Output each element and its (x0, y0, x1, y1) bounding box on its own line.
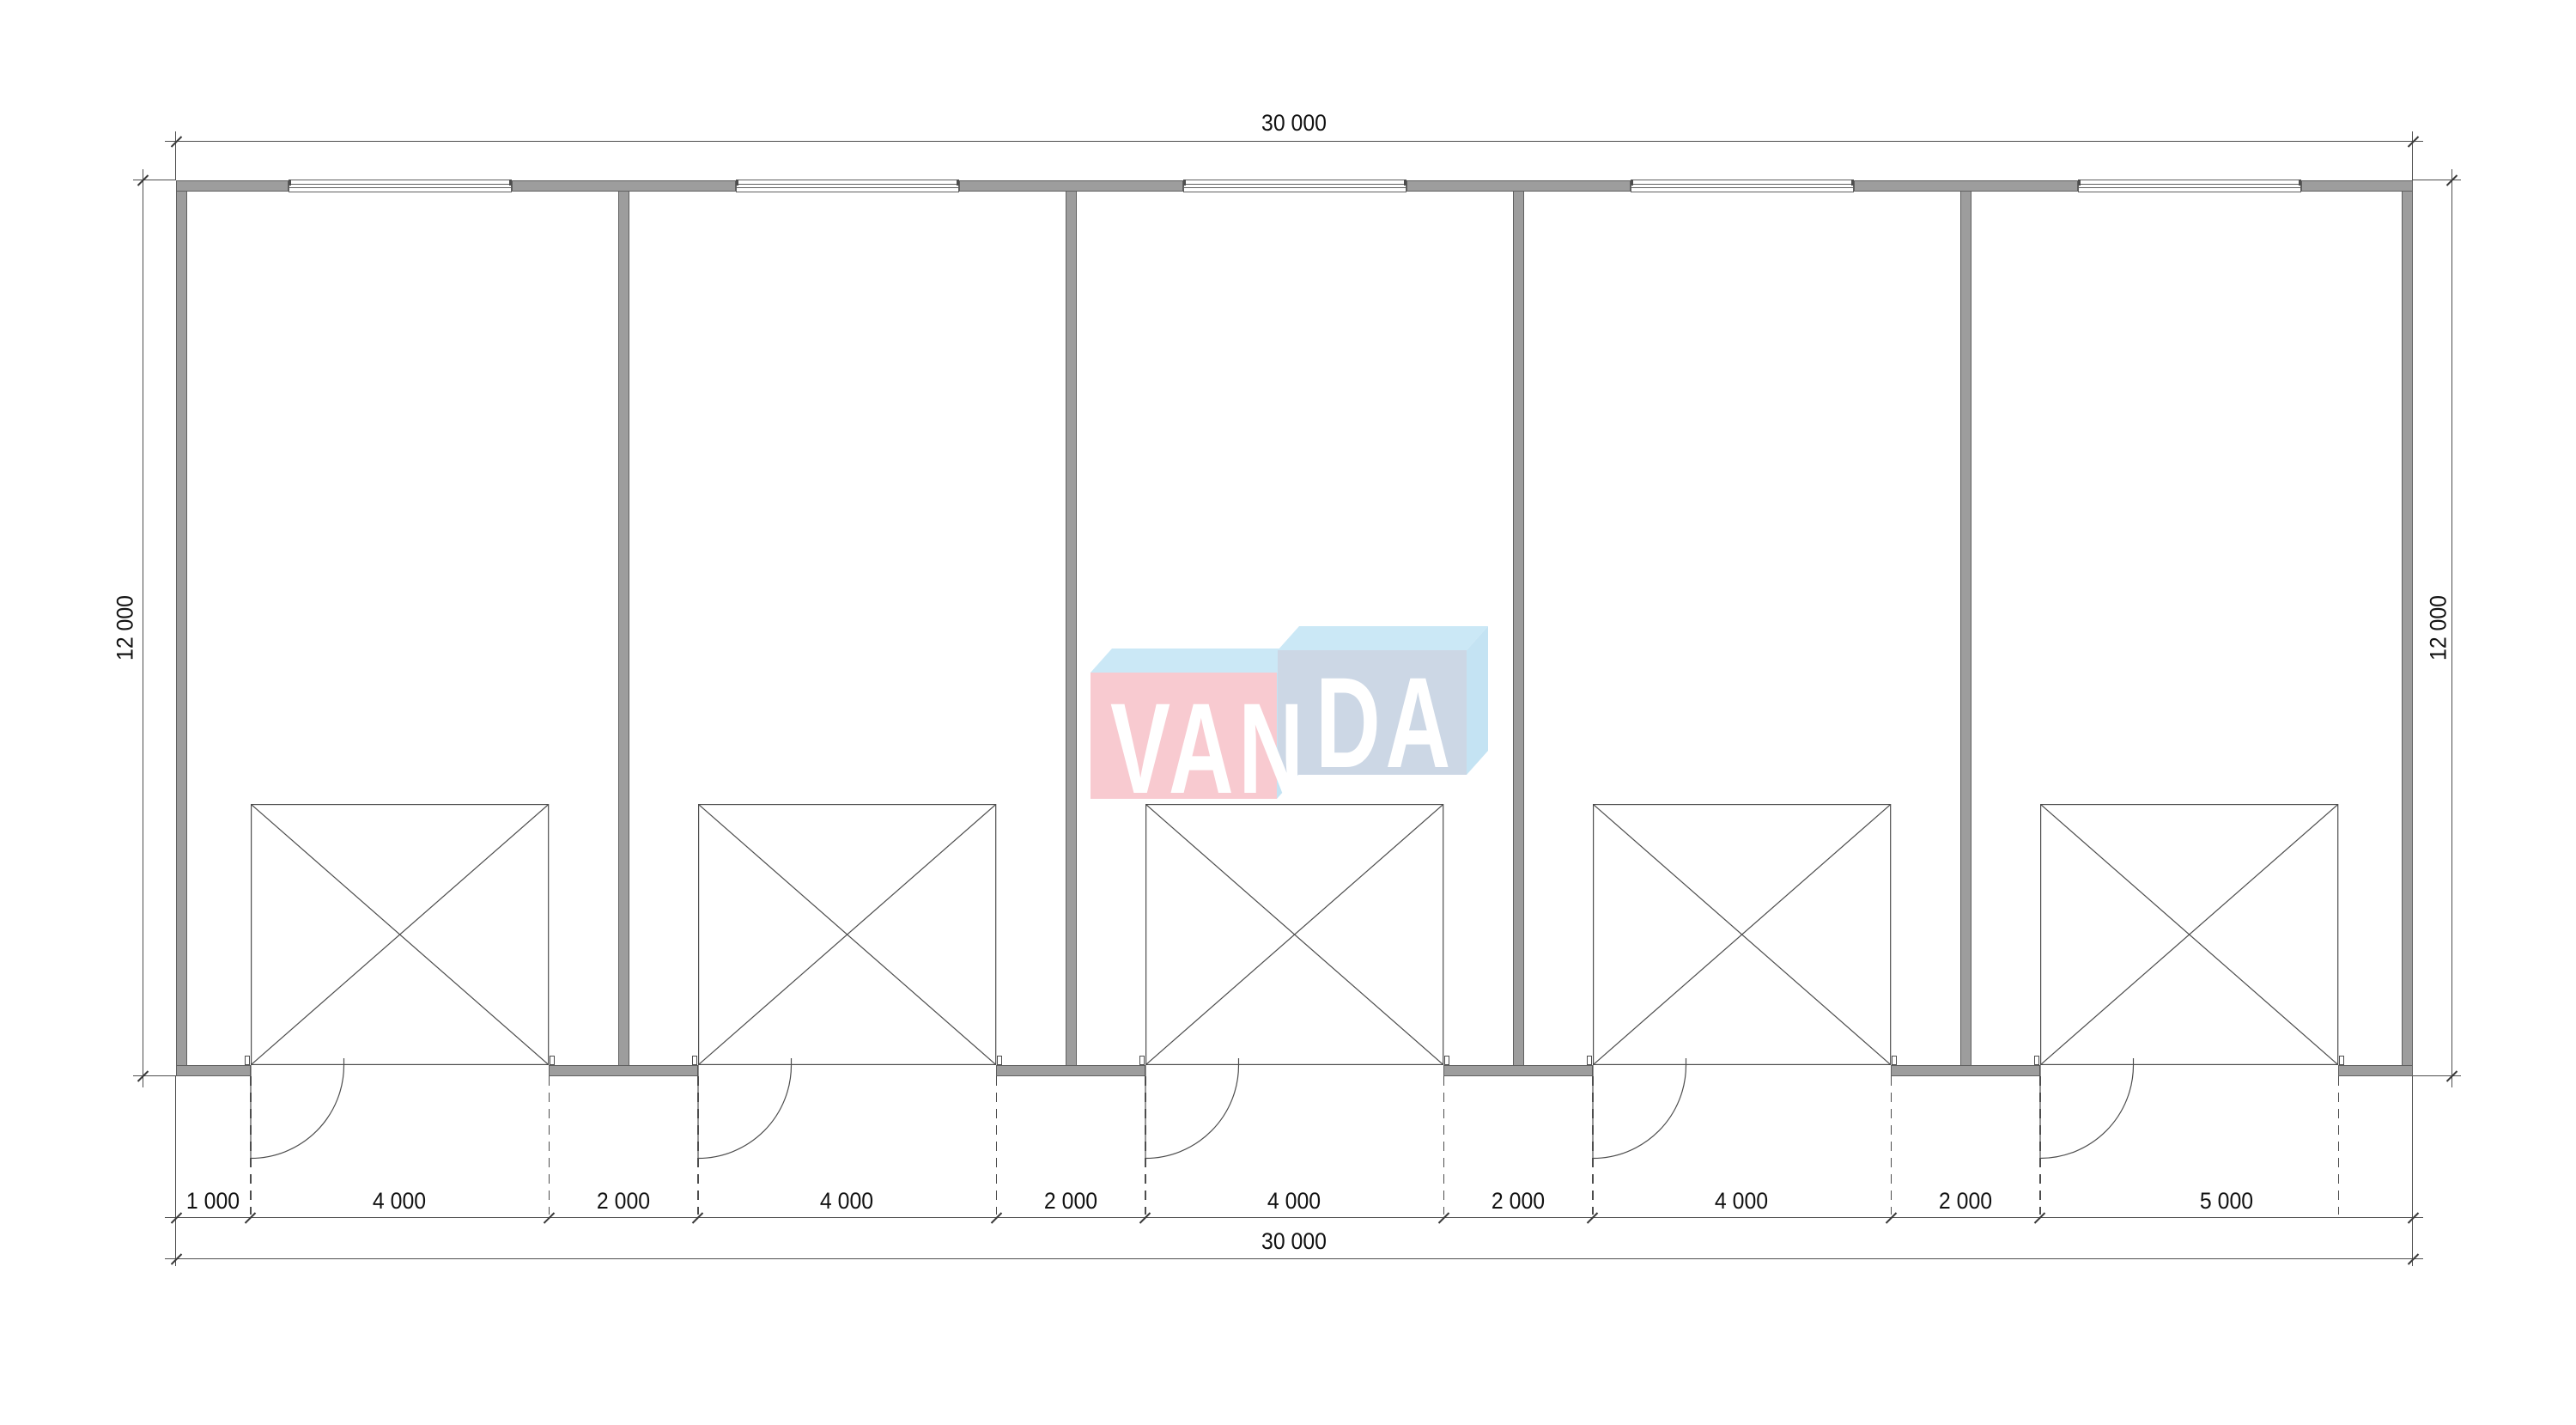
window-jamb-mark (736, 180, 738, 186)
opening-jamb (692, 1056, 697, 1065)
bottom-overall-dimension-line (165, 1258, 2423, 1259)
extension-line (175, 1076, 176, 1266)
partition-wall (618, 191, 629, 1066)
opening-jamb (245, 1056, 250, 1065)
exterior-wall-top-segment (512, 180, 736, 192)
extension-line (2412, 131, 2413, 180)
logo-right-box-side-face (1467, 626, 1488, 775)
exterior-wall-top-segment (176, 180, 289, 192)
floor-plan-canvas: 30 000 30 000 12 000 12 000 1 000 4 000 … (0, 0, 2576, 1425)
exterior-wall-bottom-segment (996, 1065, 1145, 1076)
opening-jamb (2339, 1056, 2344, 1065)
right-dimension-line (2451, 169, 2452, 1087)
gate-symbol-xbox (1145, 804, 1443, 1065)
gate-symbol-xbox (1593, 804, 1891, 1065)
window-jamb-mark (289, 180, 291, 186)
dimension-label-left: 12 000 (114, 595, 137, 661)
opening-projection-dashed-line (250, 1076, 251, 1215)
door-swing (697, 1053, 800, 1166)
extension-line (133, 180, 176, 180)
window (289, 180, 513, 192)
exterior-wall-left (176, 180, 187, 1076)
dimension-label-bottom-total: 30 000 (1261, 1230, 1327, 1253)
gate-symbol-xbox (698, 804, 996, 1065)
partition-wall (1960, 191, 1971, 1066)
exterior-wall-bottom-segment (176, 1065, 251, 1076)
door-swing-arc (1145, 1065, 1239, 1159)
dimension-label-chain: 4 000 (1267, 1190, 1321, 1213)
opening-projection-dashed-line (1443, 1076, 1444, 1215)
window (736, 180, 960, 192)
logo-right-box-top-face (1278, 626, 1488, 650)
exterior-wall-top-segment (1406, 180, 1631, 192)
dimension-label-chain: 2 000 (1492, 1190, 1545, 1213)
opening-projection-dashed-line (1145, 1076, 1145, 1215)
dimension-label-chain: 1 000 (186, 1190, 240, 1213)
dimension-label-chain: 4 000 (373, 1190, 426, 1213)
opening-projection-dashed-line (549, 1076, 550, 1215)
logo-text-left: VAN (1110, 684, 1309, 813)
logo-text-right: DA (1315, 658, 1455, 787)
window-jamb-mark (1183, 180, 1186, 186)
window-jamb-mark (957, 180, 959, 186)
opening-jamb (1139, 1056, 1145, 1065)
opening-jamb (1587, 1056, 1592, 1065)
opening-jamb (997, 1056, 1002, 1065)
opening-projection-dashed-line (996, 1076, 997, 1215)
door-swing-arc (698, 1065, 792, 1159)
opening-projection-dashed-line (2338, 1076, 2339, 1215)
partition-wall (1066, 191, 1077, 1066)
left-dimension-line (143, 169, 143, 1087)
dimension-label-chain: 2 000 (1939, 1190, 1992, 1213)
window-jamb-mark (509, 180, 512, 186)
window-jamb-mark (2299, 180, 2301, 186)
window (1631, 180, 1855, 192)
extension-line (2412, 1076, 2413, 1266)
door-swing-arc (2040, 1065, 2134, 1159)
window-jamb-mark (2078, 180, 2081, 186)
dimension-label-chain: 5 000 (2200, 1190, 2253, 1213)
extension-line (133, 1075, 176, 1076)
door-swing (250, 1053, 353, 1166)
exterior-wall-bottom-segment (1443, 1065, 1593, 1076)
dimension-label-chain: 2 000 (597, 1190, 650, 1213)
logo-left-box-top-face (1091, 649, 1298, 673)
exterior-wall-right (2402, 180, 2413, 1076)
dimension-label-right: 12 000 (2427, 595, 2451, 661)
door-swing-arc (251, 1065, 344, 1159)
opening-projection-dashed-line (2039, 1076, 2040, 1215)
opening-jamb (2034, 1056, 2039, 1065)
partition-wall (1513, 191, 1524, 1066)
bottom-chain-dimension-line (165, 1217, 2423, 1218)
window-jamb-mark (1851, 180, 1854, 186)
dimension-label-chain: 4 000 (820, 1190, 873, 1213)
window (2078, 180, 2302, 192)
exterior-wall-top-segment (2301, 180, 2413, 192)
dimension-label-chain: 2 000 (1044, 1190, 1097, 1213)
window (1183, 180, 1407, 192)
dimension-label-top: 30 000 (1261, 112, 1327, 135)
opening-projection-dashed-line (1891, 1076, 1892, 1215)
exterior-wall-bottom-segment (2338, 1065, 2413, 1076)
opening-projection-dashed-line (1592, 1076, 1593, 1215)
door-swing-arc (1593, 1065, 1686, 1159)
top-dimension-line (165, 141, 2423, 142)
door-swing (2039, 1053, 2142, 1166)
window-jamb-mark (1631, 180, 1633, 186)
opening-jamb (550, 1056, 555, 1065)
window-jamb-mark (1404, 180, 1406, 186)
gate-symbol-xbox (251, 804, 549, 1065)
extension-line (175, 131, 176, 180)
exterior-wall-bottom-segment (1891, 1065, 2040, 1076)
door-swing (1592, 1053, 1695, 1166)
opening-jamb (1892, 1056, 1897, 1065)
door-swing (1145, 1053, 1248, 1166)
gate-symbol-xbox (2040, 804, 2338, 1065)
exterior-wall-top-segment (1854, 180, 2078, 192)
dimension-label-chain: 4 000 (1715, 1190, 1768, 1213)
opening-jamb (1444, 1056, 1449, 1065)
opening-projection-dashed-line (697, 1076, 698, 1215)
exterior-wall-bottom-segment (549, 1065, 698, 1076)
exterior-wall-top-segment (959, 180, 1183, 192)
